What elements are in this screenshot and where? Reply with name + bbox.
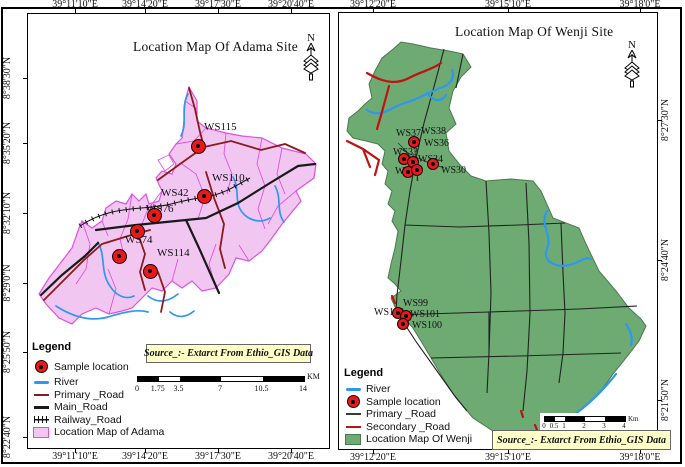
- tick-mark: [658, 400, 662, 401]
- sample-label: WS36: [424, 138, 449, 149]
- legend-main-road-icon: [34, 406, 49, 409]
- sample-location-dot: [191, 139, 206, 154]
- sample-label: WS101: [410, 309, 440, 320]
- legend-item: Location Map of Adama: [32, 426, 164, 439]
- sample-location-dot: [130, 224, 145, 239]
- legend-label: River: [54, 376, 79, 388]
- legend-primary-road-adama-icon: [34, 394, 49, 396]
- wenji-source-note: Source_:- Extarct From Ethio_GIS Data: [492, 430, 671, 450]
- sample-label: WS42: [161, 187, 189, 199]
- sample-location-dot: [397, 318, 409, 330]
- legend-label: Primary _Road: [366, 408, 436, 420]
- adama-district-polygon: [39, 87, 316, 324]
- sample-label: WS115: [204, 121, 237, 133]
- lat-label: 8°32'10"N: [2, 183, 14, 243]
- tick-mark: [508, 8, 509, 12]
- scalebar-segment: [159, 377, 180, 381]
- scalebar-number: 2: [582, 422, 586, 430]
- north-arrow: N: [622, 40, 642, 93]
- north-arrow: N: [301, 33, 321, 86]
- wenji-legend: Legend RiverSample locationPrimary _Road…: [344, 367, 472, 446]
- legend-label: Main_Road: [54, 401, 108, 413]
- sample-location-dot: [197, 189, 212, 204]
- scalebar-number: 1.75: [151, 384, 165, 393]
- tick-mark: [23, 283, 27, 284]
- sample-label: WS38: [421, 126, 446, 137]
- scalebar-number: 1: [562, 422, 566, 430]
- tick-mark: [218, 449, 219, 453]
- adama-map-title: Location Map Of Adama Site: [133, 39, 298, 55]
- tick-mark: [291, 9, 292, 13]
- legend-item: Primary _Road: [32, 389, 164, 402]
- scalebar-number: 4: [622, 422, 626, 430]
- scalebar-segment: [138, 377, 159, 381]
- tick-mark: [23, 352, 27, 353]
- scalebar-bar: [137, 376, 305, 382]
- legend-river-icon: [346, 388, 361, 391]
- scalebar-number: 14: [299, 384, 307, 393]
- scalebar-segment: [545, 417, 555, 421]
- legend-item: Railway_Road: [32, 414, 164, 427]
- tick-mark: [145, 9, 146, 13]
- legend-label: Location Map of Adama: [54, 426, 164, 438]
- tick-mark: [23, 143, 27, 144]
- scalebar-segment: [585, 417, 605, 421]
- legend-primary-road-wenji-icon: [346, 413, 361, 415]
- legend-label: Sample location: [366, 396, 441, 408]
- tick-mark: [658, 120, 662, 121]
- legend-river-icon: [34, 381, 49, 384]
- sample-location-dot: [408, 136, 420, 148]
- north-label: N: [301, 33, 321, 43]
- legend-wenji-fill-icon: [345, 434, 361, 445]
- lat-label: 8°35'20"N: [2, 113, 14, 173]
- legend-adama-fill-icon: [33, 427, 49, 438]
- legend-item: Secondary _Road: [344, 421, 472, 434]
- legend-item: Primary _Road: [344, 408, 472, 421]
- scalebar-segment: [555, 417, 565, 421]
- tick-mark: [291, 449, 292, 453]
- adama-scalebar: 01.753.5710.514KM: [137, 376, 303, 382]
- sample-label: WS30: [441, 165, 466, 176]
- scalebar-unit: KM: [307, 372, 320, 381]
- tick-mark: [373, 450, 374, 454]
- scalebar-number: 0.5: [550, 422, 559, 430]
- sample-location-dot: [143, 264, 158, 279]
- north-arrow-icon: [303, 43, 319, 81]
- tick-mark: [640, 450, 641, 454]
- scalebar-segment: [565, 417, 585, 421]
- legend-label: Sample location: [54, 361, 129, 373]
- north-arrow-icon: [624, 50, 640, 88]
- tick-mark: [75, 9, 76, 13]
- north-label: N: [622, 40, 642, 50]
- sample-location-dot: [427, 158, 439, 170]
- scalebar-number: 7: [218, 384, 222, 393]
- sample-label: WS110: [212, 172, 245, 184]
- legend-item: Main_Road: [32, 401, 164, 414]
- sample-location-dot: [112, 249, 127, 264]
- legend-label: Secondary _Road: [366, 421, 450, 433]
- tick-mark: [23, 78, 27, 79]
- tick-mark: [23, 437, 27, 438]
- legend-label: River: [366, 383, 391, 395]
- legend-label: Location Map Of Wenji: [366, 433, 472, 445]
- lat-label: 8°25'50"N: [2, 322, 14, 382]
- legend-item: River: [344, 383, 472, 396]
- legend-item: Sample location: [32, 357, 164, 376]
- legend-label: Railway_Road: [54, 414, 122, 426]
- scalebar-segment: [221, 377, 263, 381]
- sample-label: WS100: [412, 320, 442, 331]
- legend-sample-dot-icon: [35, 360, 48, 373]
- legend-item: Location Map Of Wenji: [344, 433, 472, 446]
- tick-mark: [640, 8, 641, 12]
- sample-location-dot: [147, 208, 162, 223]
- scalebar-segment: [180, 377, 222, 381]
- legend-sample-dot-icon: [347, 395, 360, 408]
- tick-mark: [75, 449, 76, 453]
- lat-label: 8°38'30"N: [2, 48, 14, 108]
- tick-mark: [218, 9, 219, 13]
- sample-location-dot: [411, 164, 423, 176]
- legend-header: Legend: [344, 367, 472, 379]
- adama-source-note: Source_:- Extarct From Ethio_GIS Data: [146, 344, 311, 363]
- sample-label: WS114: [157, 247, 190, 259]
- legend-item: Sample location: [344, 396, 472, 409]
- scalebar-unit: Km: [628, 415, 639, 423]
- scalebar-number: 3: [602, 422, 606, 430]
- sample-label: WS99: [403, 298, 428, 309]
- scalebar-number: 0: [542, 422, 546, 430]
- scalebar-segment: [263, 377, 305, 381]
- tick-mark: [145, 449, 146, 453]
- scalebar-segment: [605, 417, 625, 421]
- tick-mark: [23, 213, 27, 214]
- legend-label: Primary _Road: [54, 389, 124, 401]
- tick-mark: [658, 260, 662, 261]
- scalebar-number: 10.5: [255, 384, 269, 393]
- map-figure: Location Map Of Adama Site Location Map …: [0, 0, 685, 467]
- tick-mark: [373, 8, 374, 12]
- wenji-map-title: Location Map Of Wenji Site: [455, 24, 613, 40]
- legend-railway-road-icon: [34, 416, 49, 423]
- scalebar-number: 3.5: [174, 384, 184, 393]
- lat-label: 8°22'40"N: [2, 407, 14, 467]
- scalebar-number: 0: [135, 384, 139, 393]
- lat-label: 8°29'0"N: [2, 253, 14, 313]
- tick-mark: [508, 450, 509, 454]
- legend-secondary-road-icon: [346, 426, 361, 429]
